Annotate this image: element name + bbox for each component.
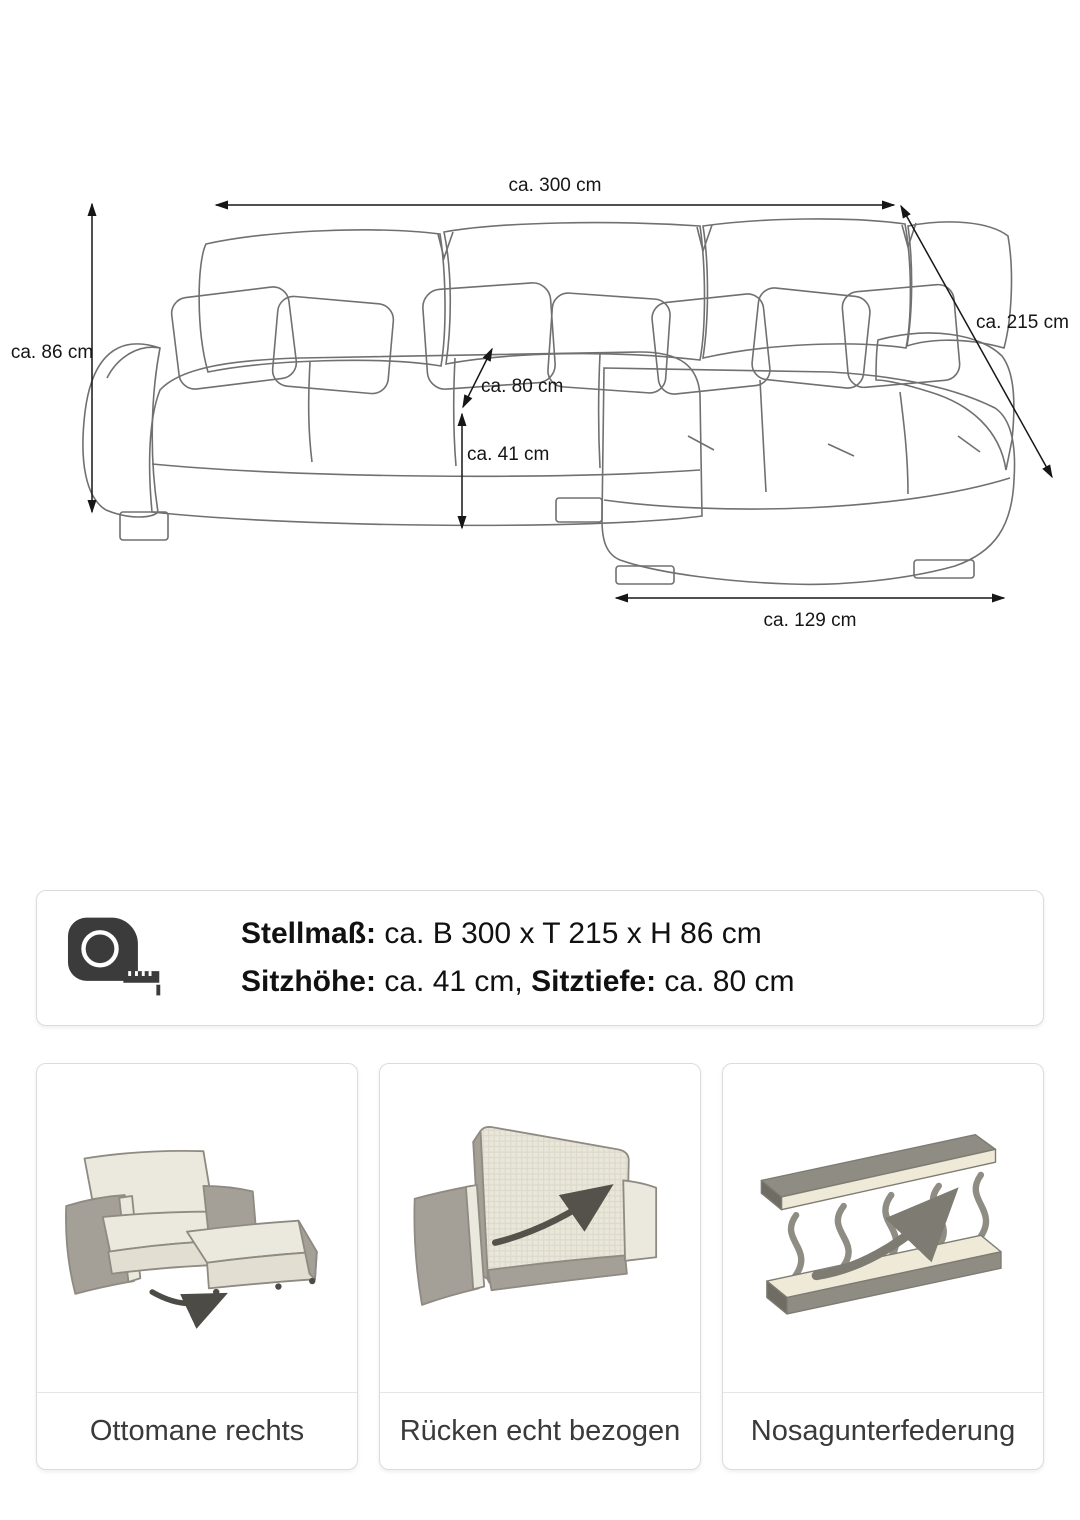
- card-nosagunterfederung: Nosagunterfederung: [722, 1063, 1044, 1470]
- dimension-height-label: ca. 86 cm: [11, 342, 93, 363]
- dimension-seat-height-label: ca. 41 cm: [467, 444, 549, 465]
- dimension-ottoman-width-label: ca. 129 cm: [764, 610, 857, 631]
- measurements-text: Stellmaß: ca. B 300 x T 215 x H 86 cm Si…: [241, 910, 794, 1006]
- card-label-ottomane-rechts: Ottomane rechts: [37, 1392, 357, 1469]
- measurements-info-box: Stellmaß: ca. B 300 x T 215 x H 86 cm Si…: [36, 890, 1044, 1026]
- feature-cards: Ottomane rechts: [36, 1063, 1044, 1470]
- sitztiefe-label: Sitztiefe:: [531, 965, 656, 998]
- stellmass-line: Stellmaß: ca. B 300 x T 215 x H 86 cm: [241, 910, 794, 958]
- card-ottomane-rechts: Ottomane rechts: [36, 1063, 358, 1470]
- sofa-sketch: [83, 219, 1015, 584]
- dimension-seat-depth-label: ca. 80 cm: [481, 376, 563, 397]
- stellmass-label: Stellmaß:: [241, 917, 376, 950]
- ottoman-right-illustration: [47, 1078, 347, 1378]
- card-label-nosagunterfederung: Nosagunterfederung: [723, 1392, 1043, 1469]
- dimension-arrows: [92, 204, 1052, 598]
- sitzhoehe-label: Sitzhöhe:: [241, 965, 376, 998]
- tape-measure-icon: [67, 916, 169, 1000]
- card-ruecken-echt-bezogen: Rücken echt bezogen: [379, 1063, 701, 1470]
- sitz-line: Sitzhöhe: ca. 41 cm, Sitztiefe: ca. 80 c…: [241, 958, 794, 1006]
- product-dimensions-page: ca. 300 cm ca. 215 cm ca. 86 cm ca. 80 c…: [0, 0, 1080, 1520]
- dimension-width-label: ca. 300 cm: [509, 175, 602, 196]
- nosag-springs-illustration: [733, 1078, 1033, 1378]
- card-label-ruecken-echt-bezogen: Rücken echt bezogen: [380, 1392, 700, 1469]
- sofa-back-covered-illustration: [390, 1078, 690, 1378]
- sofa-dimension-diagram: ca. 300 cm ca. 215 cm ca. 86 cm ca. 80 c…: [0, 0, 1080, 730]
- dimension-depth-label: ca. 215 cm: [976, 312, 1069, 333]
